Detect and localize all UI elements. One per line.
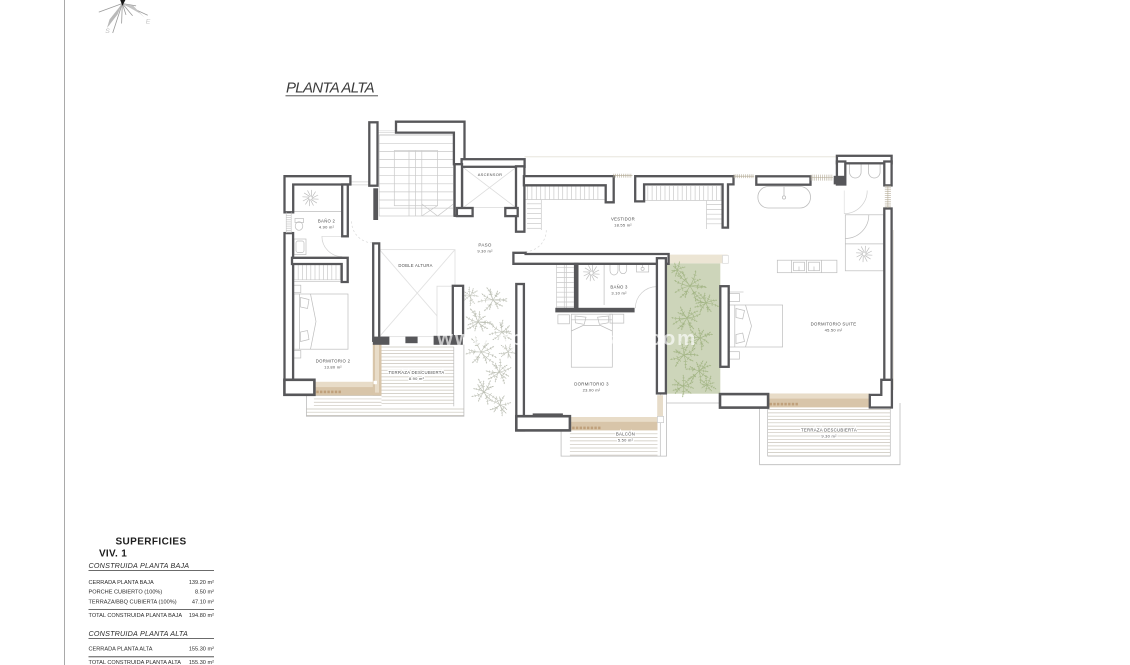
svg-text:DORMITORIO 3: DORMITORIO 3 [574,382,609,387]
svg-text:TOTAL CONSTRUIDA PLANTA BAJA: TOTAL CONSTRUIDA PLANTA BAJA [89,613,183,619]
svg-text:DOBLE ALTURA: DOBLE ALTURA [398,263,432,268]
svg-text:8.50 m²: 8.50 m² [195,589,214,595]
svg-text:155.30 m²: 155.30 m² [189,660,214,665]
svg-text:SUPERFICIES: SUPERFICIES [115,537,186,548]
svg-text:47.10 m²: 47.10 m² [192,600,214,606]
svg-text:CONSTRUIDA PLANTA BAJA: CONSTRUIDA PLANTA BAJA [89,561,190,570]
svg-text:139.20 m²: 139.20 m² [189,580,214,586]
svg-text:CERRADA PLANTA BAJA: CERRADA PLANTA BAJA [89,580,154,586]
svg-text:PORCHE CUBIERTO (100%): PORCHE CUBIERTO (100%) [89,589,163,595]
svg-text:3.10 m²: 3.10 m² [611,291,627,296]
svg-text:DORMITORIO 2: DORMITORIO 2 [316,359,351,364]
svg-text:45.50 m²: 45.50 m² [825,328,843,333]
svg-text:8.90 m²: 8.90 m² [409,376,425,381]
svg-text:155.30 m²: 155.30 m² [189,647,214,653]
svg-text:18.55 m²: 18.55 m² [614,223,632,228]
svg-text:9.30 m²: 9.30 m² [477,249,493,254]
svg-text:E: E [146,19,151,26]
svg-text:VIV. 1: VIV. 1 [99,549,127,560]
svg-text:S: S [105,28,110,35]
svg-text:PASO: PASO [478,243,491,248]
svg-text:BAÑO 2: BAÑO 2 [318,219,336,224]
svg-text:TERRAZA/BBQ CUBIERTA (100%): TERRAZA/BBQ CUBIERTA (100%) [89,600,177,606]
svg-text:VESTIDOR: VESTIDOR [611,217,635,222]
svg-text:www.spainhouses.com: www.spainhouses.com [436,327,697,350]
svg-text:23.00 m²: 23.00 m² [583,388,601,393]
svg-text:TERRAZA DESCUBIERTA: TERRAZA DESCUBIERTA [801,428,857,433]
svg-text:9.30 m²: 9.30 m² [821,434,837,439]
svg-text:PLANTA ALTA: PLANTA ALTA [286,80,375,97]
svg-text:TOTAL CONSTRUIDA PLANTA ALTA: TOTAL CONSTRUIDA PLANTA ALTA [89,660,182,665]
svg-text:BAÑO 3: BAÑO 3 [610,285,628,290]
svg-text:CERRADA PLANTA ALTA: CERRADA PLANTA ALTA [89,647,153,653]
svg-text:TERRAZA DESCUBIERTA: TERRAZA DESCUBIERTA [389,370,445,375]
svg-text:BALCÓN: BALCÓN [616,432,635,437]
svg-text:194.80 m²: 194.80 m² [189,613,214,619]
svg-text:CONSTRUIDA PLANTA ALTA: CONSTRUIDA PLANTA ALTA [89,629,188,638]
svg-text:4.90 m²: 4.90 m² [319,225,335,230]
svg-text:DORMITORIO SUITE: DORMITORIO SUITE [811,322,857,327]
svg-text:13.80 m²: 13.80 m² [324,365,342,370]
svg-text:ASCENSOR: ASCENSOR [478,172,502,177]
svg-text:5.50 m²: 5.50 m² [618,438,634,443]
